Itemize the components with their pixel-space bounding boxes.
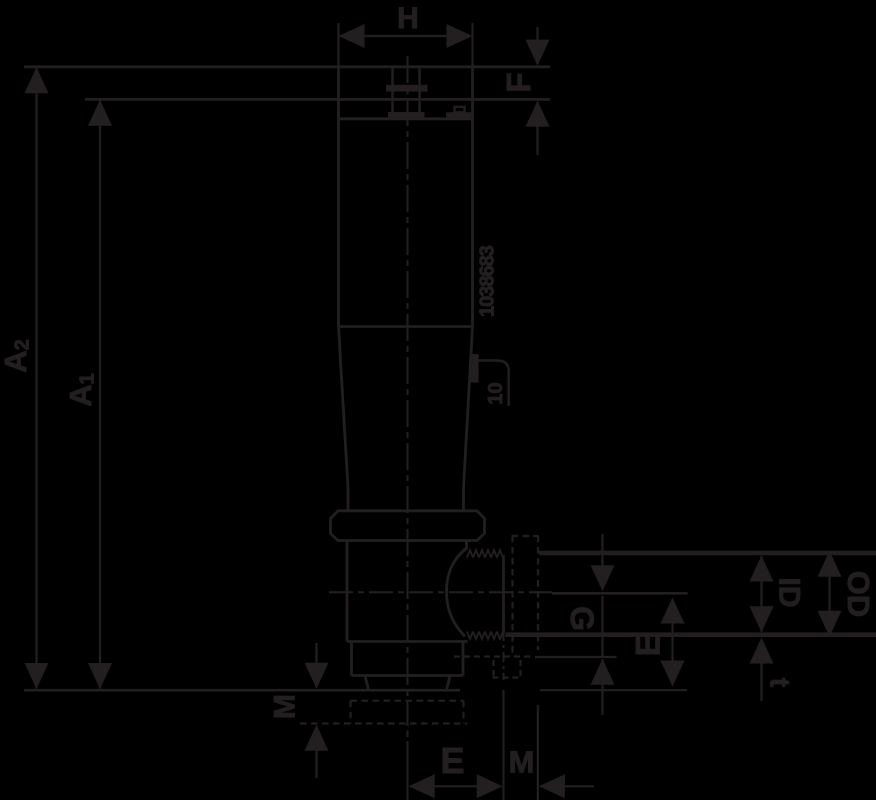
svg-text:E: E (630, 634, 668, 657)
svg-text:F: F (500, 72, 537, 92)
svg-text:ID: ID (773, 578, 806, 608)
svg-text:1038683: 1038683 (477, 245, 499, 317)
svg-text:G: G (564, 606, 600, 631)
svg-text:E: E (440, 740, 464, 781)
svg-text:M: M (269, 694, 302, 719)
svg-text:M: M (509, 745, 535, 780)
svg-text:t: t (765, 678, 796, 687)
svg-text:H: H (397, 2, 419, 35)
svg-text:10: 10 (485, 382, 507, 404)
svg-text:OD: OD (841, 571, 876, 618)
